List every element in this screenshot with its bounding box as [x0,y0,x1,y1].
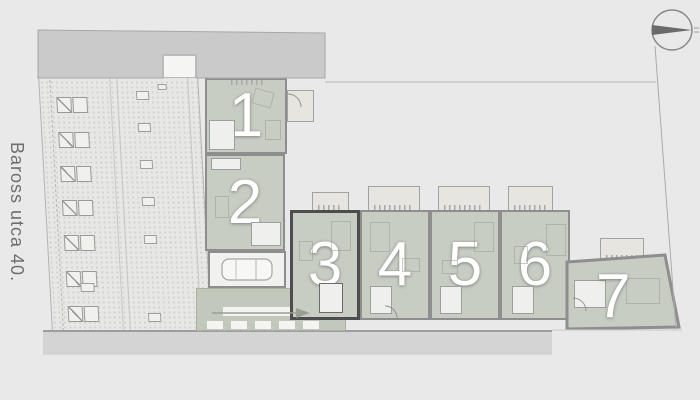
north-arrow-icon [640,5,700,60]
parking-tick [255,321,271,329]
bathroom [209,120,235,150]
unit-7[interactable]: 7 [560,248,685,332]
parking-tick [231,321,247,329]
unit-2[interactable]: 2 [205,154,285,251]
neighbor-building [38,74,212,332]
terrace-unit-4 [368,186,420,211]
furniture-outline [331,221,351,251]
window-symbol [231,80,265,85]
parking-tick [279,321,295,329]
wall-line [116,75,131,331]
window-symbol [64,235,96,251]
window-symbol [144,235,157,244]
furniture-outline [442,260,458,274]
furniture-outline [215,196,229,218]
furniture-outline [370,222,390,252]
window-symbol [80,283,94,292]
terrace-unit-3 [312,192,349,211]
furniture-outline [299,241,313,261]
furniture-outline [402,258,420,272]
window-symbol [140,160,153,169]
window-symbol [58,132,90,148]
window-symbol [138,123,151,132]
adjacent-building [38,30,325,78]
window-symbol [158,84,167,90]
bathroom [319,283,343,313]
terrace-unit-6 [508,186,553,211]
bathroom [370,286,392,314]
window-symbol [136,91,149,100]
furniture-outline [514,246,528,264]
window-symbol [56,97,88,113]
window-symbol [60,166,92,182]
sidewalk [43,330,552,355]
unit-1[interactable]: 1 [205,78,287,154]
furniture-outline [265,120,281,140]
window-symbol [68,306,100,322]
window-symbol [148,313,161,322]
parking-tick [207,321,223,329]
furniture-outline [626,278,660,304]
bathroom [251,222,281,246]
window-symbol [142,197,155,206]
street-label: Baross utca 40. [6,142,27,282]
bathroom [211,158,241,170]
unit-3[interactable]: 3 [290,210,360,320]
terrace-unit-1 [287,90,314,122]
parking-tick [303,321,319,329]
garage [208,251,286,288]
unit-number: 7 [596,266,630,328]
terrace-unit-5 [438,186,490,211]
bathroom [440,286,462,314]
site-plan: Baross utca 40. [0,0,700,400]
unit-4[interactable]: 4 [360,210,430,320]
window-symbol [62,200,94,216]
wall-line [109,75,124,331]
bathroom [512,286,534,314]
furniture-outline [474,222,494,252]
unit-5[interactable]: 5 [430,210,500,320]
